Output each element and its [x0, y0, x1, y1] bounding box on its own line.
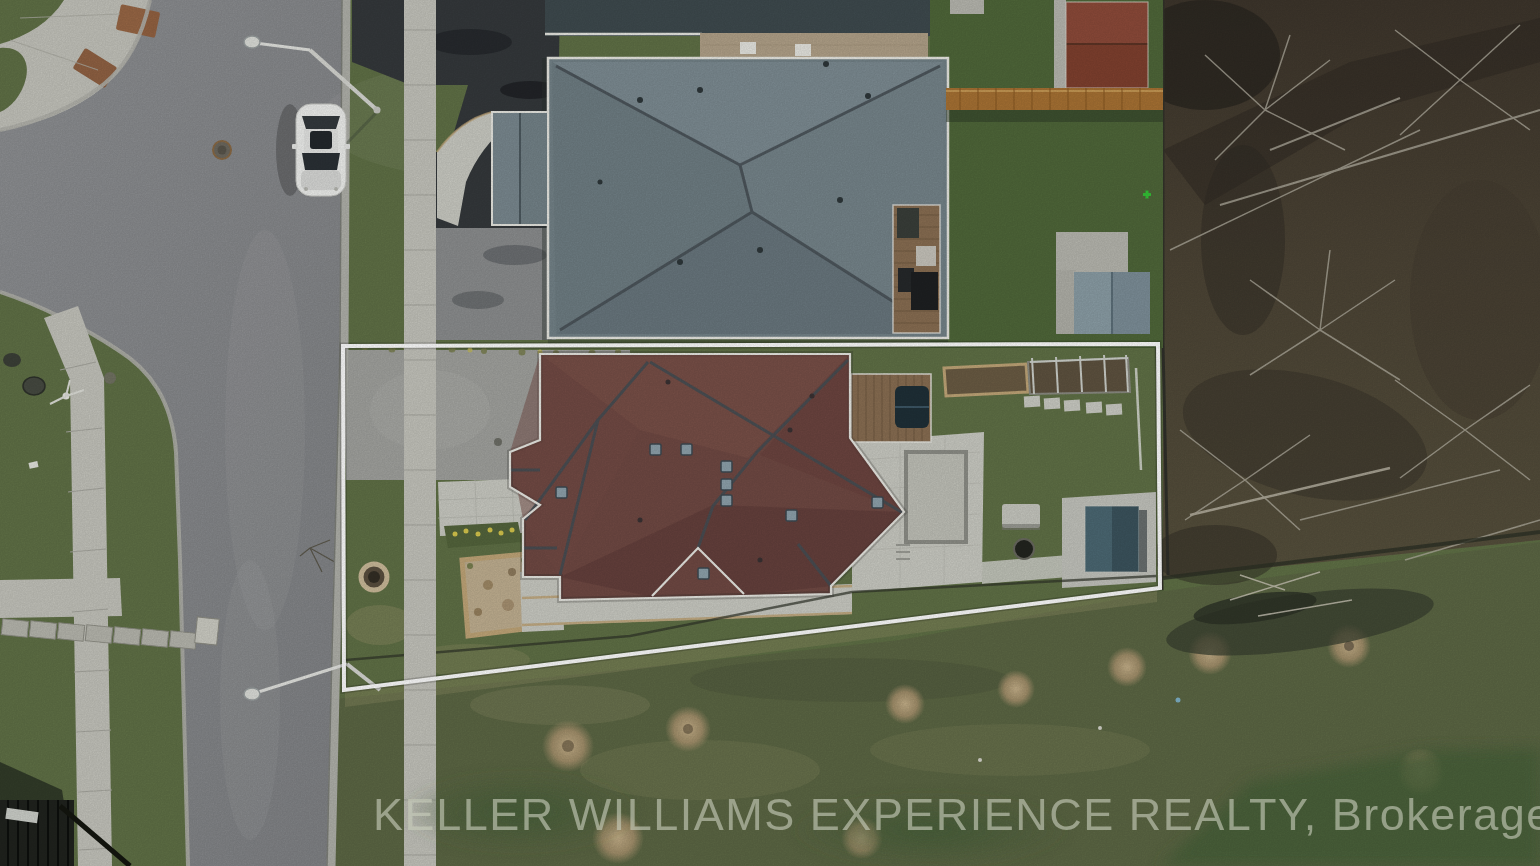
aerial-photo: KELLER WILLIAMS EXPERIENCE REALTY, Broke… — [0, 0, 1540, 866]
photo-grain — [0, 0, 1540, 866]
watermark-text: KELLER WILLIAMS EXPERIENCE REALTY, Broke… — [373, 789, 1540, 840]
